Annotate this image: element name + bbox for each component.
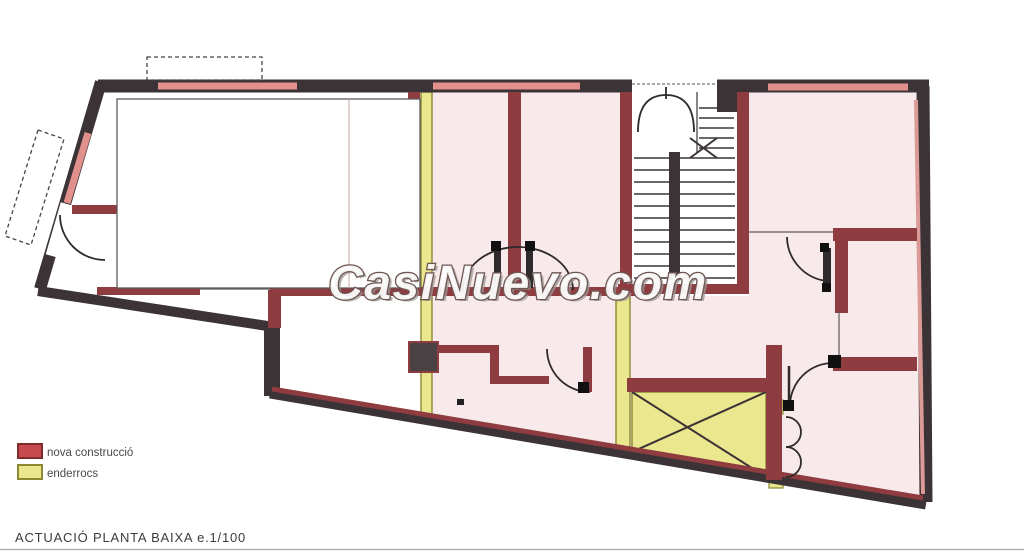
hinge-square: [783, 400, 794, 411]
hinge-square: [525, 241, 535, 251]
legend: nova construcció enderrocs: [18, 444, 133, 480]
hinge-square: [822, 283, 831, 292]
balcony-outline-top: [147, 57, 262, 80]
exterior-wall-lower-left-diagonal: [38, 291, 274, 327]
wall-vestibule-side: [72, 205, 117, 214]
wall-shaft-right: [766, 345, 782, 480]
legend-label-enderrocs: enderrocs: [47, 468, 98, 480]
legend-label-nova-construccio: nova construcció: [47, 447, 133, 459]
stair-top-wall-block: [717, 84, 737, 112]
wall-bath-lower: [498, 376, 549, 384]
watermark-text: CasiNuevo.com: [328, 257, 708, 310]
column-dot: [457, 399, 464, 405]
hinge-square: [820, 243, 829, 252]
hinge-square: [491, 241, 501, 251]
drawing-caption: ACTUACIÓ PLANTA BAIXA e.1/100: [15, 530, 246, 545]
stair-bay: [632, 78, 717, 94]
hinge-square: [828, 355, 841, 368]
wall-bath-jog: [490, 345, 499, 384]
entrance-door-opening: [52, 204, 67, 256]
legend-swatch-nova-construccio: [18, 444, 42, 458]
dark-duct-box: [409, 342, 438, 372]
wall-small-room-left: [835, 241, 848, 313]
hinge-square: [578, 382, 589, 393]
wall-small-room-bottom: [833, 357, 917, 371]
wall-stair-right: [737, 92, 749, 294]
wall-shaft-top: [627, 378, 777, 392]
watermark: CasiNuevo.com CasiNuevo.com: [328, 257, 711, 312]
stair-bay-opening: [632, 78, 717, 94]
wall-topright-room-bottom: [833, 228, 917, 241]
floor-plan-drawing: CasiNuevo.com CasiNuevo.com nova constru…: [0, 0, 1024, 551]
wall-bath-top: [437, 345, 498, 353]
floor-plan-page: CasiNuevo.com CasiNuevo.com nova constru…: [0, 0, 1024, 551]
wall-step-stub: [268, 290, 281, 328]
demolition-wall-strip-right: [616, 296, 630, 452]
room-fill-top-right: [749, 92, 917, 296]
legend-swatch-enderrocs: [18, 465, 42, 479]
